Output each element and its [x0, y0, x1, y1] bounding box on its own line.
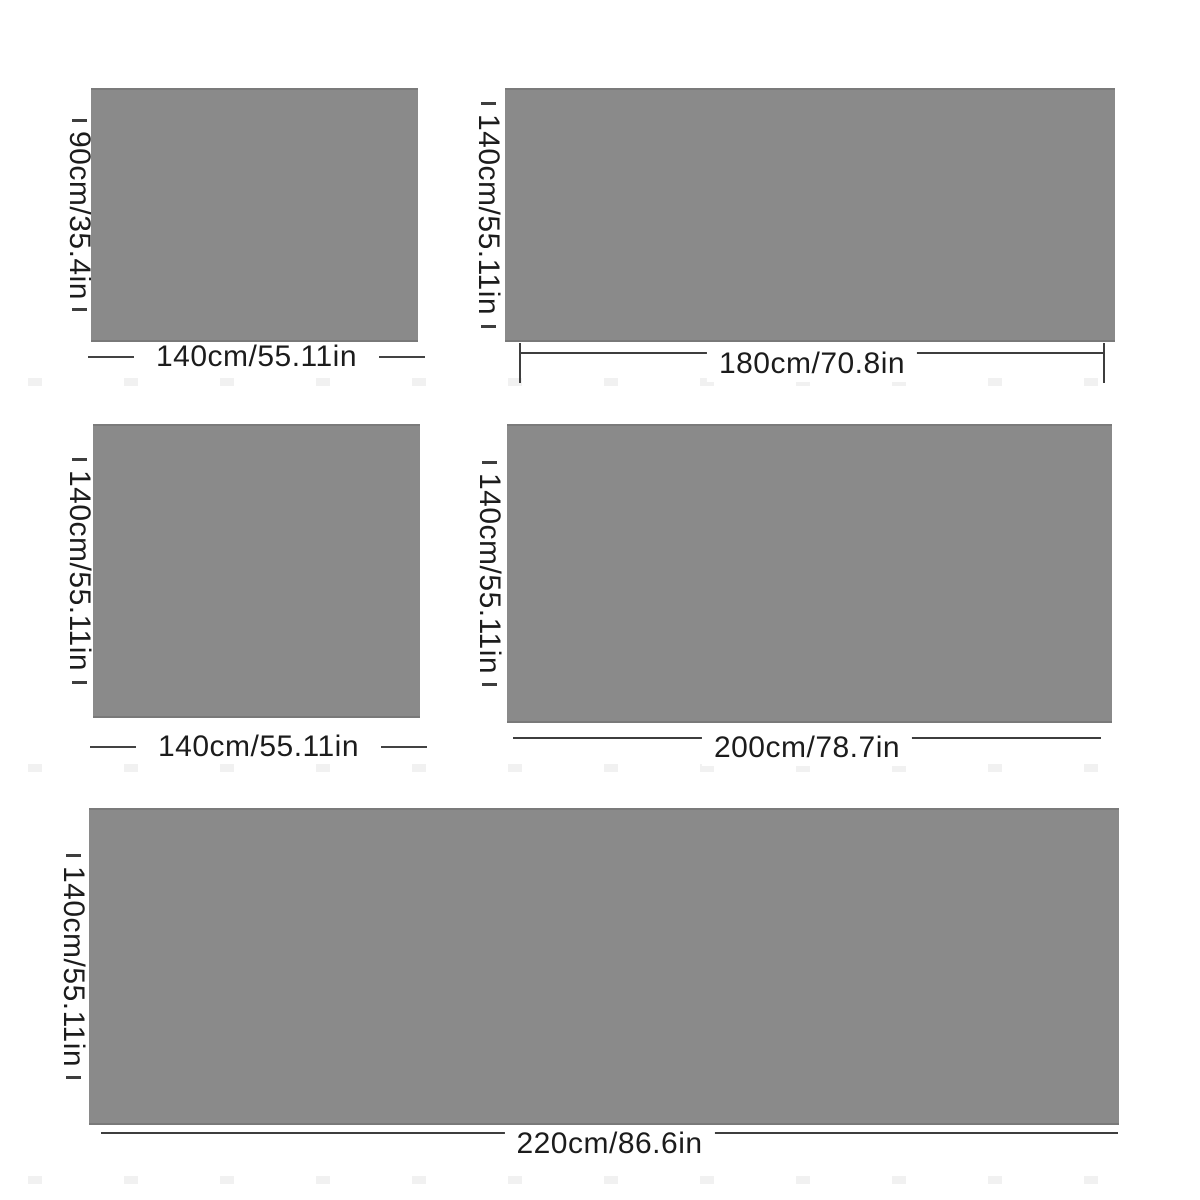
dimension-dash — [88, 356, 134, 358]
dimension-tick — [66, 854, 81, 857]
width-label: 180cm/70.8in — [707, 346, 917, 382]
width-dimension: 140cm/55.11in — [88, 340, 425, 374]
dimension-tick — [66, 1076, 81, 1079]
width-label: 220cm/86.6in — [504, 1126, 714, 1162]
height-label: 140cm/55.11in — [474, 473, 504, 674]
watermark-row — [28, 1176, 1172, 1184]
height-label: 90cm/35.4in — [64, 131, 94, 300]
dimension-tick — [482, 683, 497, 686]
fabric-swatch — [93, 424, 420, 718]
width-dimension: 140cm/55.11in — [90, 730, 427, 764]
height-dimension: 140cm/55.11in — [466, 88, 510, 342]
fabric-swatch — [89, 808, 1119, 1125]
dimension-tick — [72, 458, 87, 461]
fabric-swatch — [505, 88, 1115, 342]
width-dimension: 220cm/86.6in — [100, 1120, 1119, 1164]
size-chart: 90cm/35.4in 140cm/55.11in 140cm/55.11in … — [0, 0, 1200, 1200]
width-label: 140cm/55.11in — [156, 339, 357, 375]
fabric-swatch — [91, 88, 418, 342]
dimension-dash — [379, 356, 425, 358]
width-dimension: 200cm/78.7in — [512, 728, 1102, 768]
height-dimension: 140cm/55.11in — [467, 424, 511, 723]
dimension-endcap — [519, 343, 521, 383]
dimension-tick — [482, 461, 497, 464]
dimension-dash — [381, 746, 427, 748]
dimension-tick — [72, 681, 87, 684]
height-label: 140cm/55.11in — [64, 470, 94, 671]
width-label: 140cm/55.11in — [158, 729, 359, 765]
dimension-tick — [72, 119, 87, 122]
dimension-tick — [481, 325, 496, 328]
height-label: 140cm/55.11in — [473, 114, 503, 315]
dimension-tick — [72, 308, 87, 311]
dimension-dash — [90, 746, 136, 748]
height-label: 140cm/55.11in — [58, 866, 88, 1067]
dimension-endcap — [1103, 343, 1105, 383]
fabric-swatch — [507, 424, 1112, 723]
width-dimension: 180cm/70.8in — [519, 343, 1105, 385]
dimension-tick — [481, 102, 496, 105]
width-label: 200cm/78.7in — [702, 730, 912, 766]
